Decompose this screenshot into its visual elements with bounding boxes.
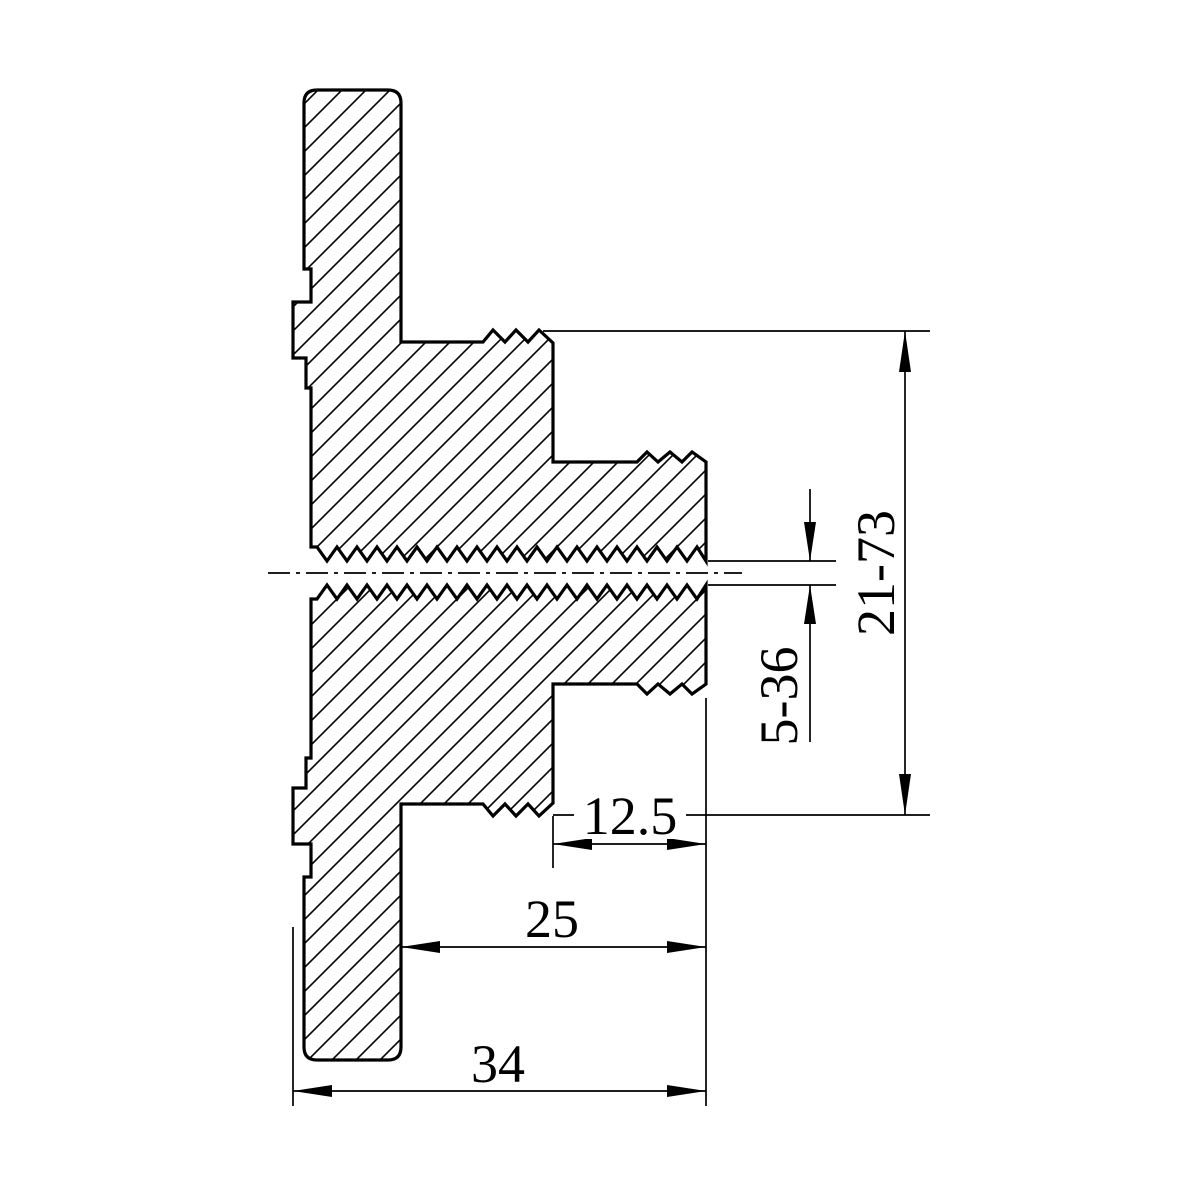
arrow-left — [293, 1085, 332, 1097]
arrow-right — [667, 941, 706, 953]
label-34: 34 — [471, 1034, 525, 1094]
arrow-down — [899, 774, 911, 815]
arrow-up-to-bore — [804, 585, 816, 624]
dimension-boss-depth: 12.5 — [553, 786, 706, 868]
arrow-left — [401, 941, 440, 953]
label-25: 25 — [525, 889, 579, 949]
part-section-upper — [293, 90, 706, 561]
label-5-36: 5-36 — [749, 647, 809, 746]
label-21-73: 21-73 — [846, 510, 906, 636]
arrow-up — [899, 331, 911, 372]
arrow-right — [667, 1085, 706, 1097]
cad-drawing-page: 21-73 5-36 12.5 25 34 — [0, 0, 1200, 1200]
dimension-bore-range: 5-36 — [708, 489, 836, 745]
technical-section-drawing: 21-73 5-36 12.5 25 34 — [0, 0, 1200, 1200]
arrow-down-to-bore — [804, 522, 816, 561]
label-12-5: 12.5 — [583, 786, 678, 846]
